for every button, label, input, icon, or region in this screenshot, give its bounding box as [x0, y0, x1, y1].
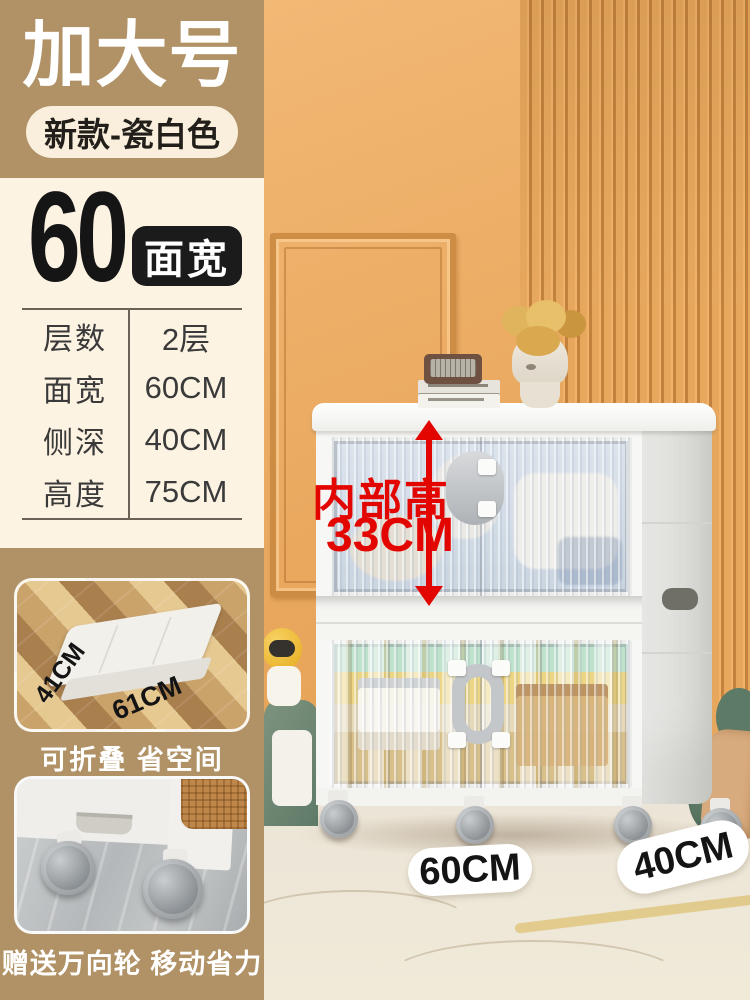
header-block: 加大号 新款-瓷白色 — [0, 0, 264, 178]
middle-lid-band — [316, 596, 642, 640]
door-clip — [448, 732, 466, 748]
base-notch — [76, 812, 133, 835]
side-seam — [642, 652, 712, 654]
spec-label: 高度 — [22, 466, 130, 518]
green-nightstand — [264, 700, 318, 826]
door-clip — [492, 660, 510, 676]
size-unit-badge: 面宽 — [132, 226, 242, 286]
door-clip — [448, 660, 466, 676]
radio-grille — [430, 359, 476, 377]
door-clip — [478, 501, 496, 517]
wicker-basket — [181, 776, 250, 829]
spec-value: 2层 — [130, 310, 242, 362]
caster-wheel — [320, 800, 358, 838]
inner-height-value: 33CM — [326, 508, 454, 563]
door-clip — [492, 732, 510, 748]
foldable-feature-card: 41CM 61CM — [14, 578, 250, 732]
toy-figure-body — [267, 666, 301, 706]
sculpture-mouth — [526, 364, 536, 370]
toy-figure-visor — [269, 640, 295, 657]
cabinet-bottom-closeup — [14, 776, 183, 846]
height-arrow-line — [426, 438, 432, 588]
lid-seam — [152, 617, 172, 665]
side-seam — [642, 522, 712, 524]
book-stack — [418, 380, 500, 408]
lower-tier-door — [330, 640, 632, 788]
table-row: 层数 2层 — [22, 310, 242, 362]
table-row: 高度 75CM — [22, 466, 242, 518]
spec-label: 侧深 — [22, 414, 130, 466]
side-handle-cutout — [662, 588, 698, 610]
foldable-caption: 可折叠 省空间 — [0, 738, 264, 777]
book-spine-text — [428, 384, 488, 387]
spec-value: 75CM — [130, 466, 242, 518]
caster-wheel — [41, 841, 95, 895]
features-block: 41CM 61CM 可折叠 省空间 赠送万向轮 移动省力 — [0, 548, 264, 1000]
height-arrow-up-icon — [415, 420, 443, 440]
product-listing-image: 内部高 33CM 60CM 40CM 加大号 新款-瓷白色 60 面宽 层数 2… — [0, 0, 750, 1000]
spec-label: 面宽 — [22, 362, 130, 414]
vase-neck — [520, 382, 560, 408]
dried-flower — [516, 326, 560, 356]
height-arrow-down-icon — [415, 586, 443, 606]
spec-table: 层数 2层 面宽 60CM 侧深 40CM 高度 75CM — [22, 308, 242, 520]
spec-value: 60CM — [130, 362, 242, 414]
size-number: 60 — [28, 184, 124, 292]
vintage-radio — [424, 354, 482, 384]
book-spine-text — [428, 398, 484, 401]
spec-value: 40CM — [130, 414, 242, 466]
nightstand-drawer — [272, 730, 312, 806]
table-row: 侧深 40CM — [22, 414, 242, 466]
spec-block: 60 面宽 层数 2层 面宽 60CM 侧深 40CM 高度 75CM — [0, 178, 264, 548]
page-title: 加大号 — [0, 8, 264, 104]
cabinet-side-panel — [642, 412, 712, 804]
spec-label: 层数 — [22, 310, 130, 362]
product-photo: 内部高 33CM 60CM 40CM — [264, 0, 750, 1000]
lid-seam — [98, 625, 118, 673]
cabinet-top-lid — [312, 403, 716, 431]
front-width-pill: 60CM — [407, 843, 533, 897]
wheels-caption: 赠送万向轮 移动省力 — [0, 942, 264, 981]
caster-wheel — [456, 806, 494, 844]
caster-wheel — [143, 859, 203, 919]
variant-badge: 新款-瓷白色 — [26, 106, 238, 158]
table-row: 面宽 60CM — [22, 362, 242, 414]
door-clip — [478, 459, 496, 475]
lid-lip-line — [316, 622, 642, 624]
wheels-feature-card — [14, 776, 250, 934]
